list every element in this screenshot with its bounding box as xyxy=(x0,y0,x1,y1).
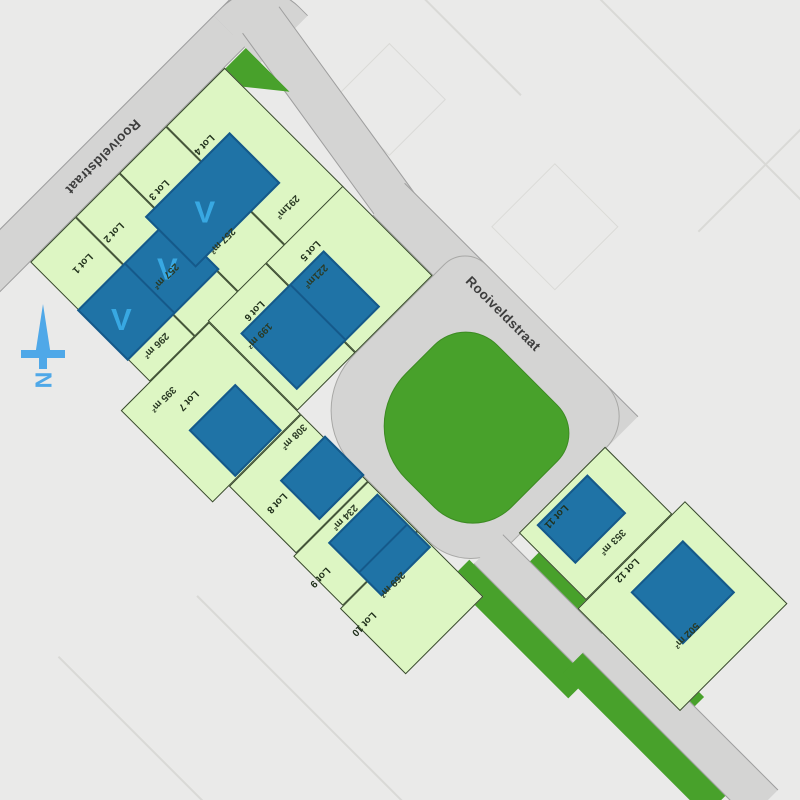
roof-marker-icon: V xyxy=(111,304,132,335)
site-plan-map: V V V Lot 1 296 m² Lot 2 257 m² Lot 3 25… xyxy=(0,0,800,800)
bg-parcel-line xyxy=(698,33,800,232)
north-arrow-stem xyxy=(39,358,47,369)
party-wall xyxy=(359,524,407,572)
north-arrow-crossbar xyxy=(21,350,65,358)
roof-marker-icon: V xyxy=(194,196,215,227)
north-compass: N xyxy=(18,296,82,400)
compass-label: N xyxy=(30,372,57,389)
rotated-plan-layer: V V V Lot 1 296 m² Lot 2 257 m² Lot 3 25… xyxy=(0,0,800,800)
party-wall xyxy=(290,285,345,340)
north-arrow-icon xyxy=(35,304,51,356)
neighbor-building-outline xyxy=(491,163,618,290)
